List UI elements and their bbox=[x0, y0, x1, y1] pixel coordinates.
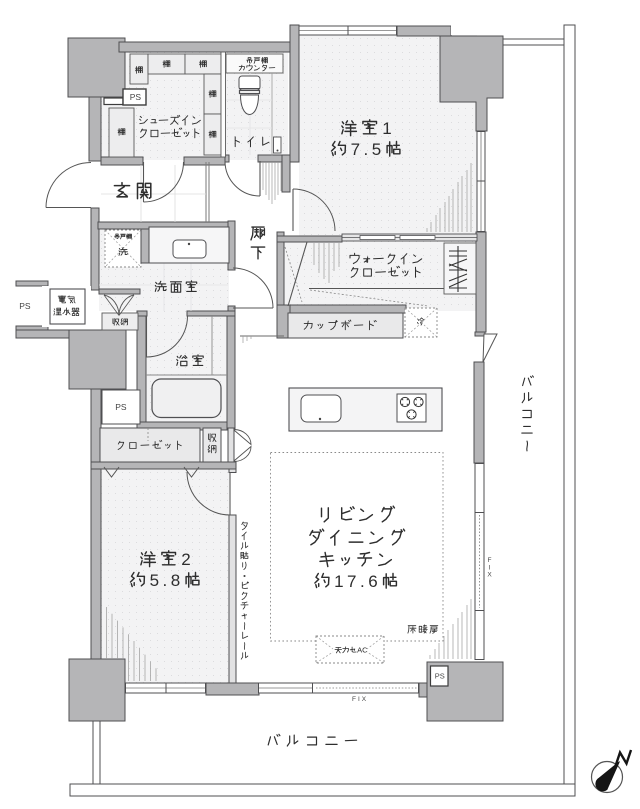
svg-text:2: 2 bbox=[181, 550, 194, 569]
svg-text:17.6: 17.6 bbox=[334, 572, 381, 591]
svg-text:X: X bbox=[487, 571, 492, 578]
svg-text:PS: PS bbox=[115, 402, 127, 412]
svg-text:PS: PS bbox=[19, 301, 31, 311]
svg-text:5.8: 5.8 bbox=[150, 571, 184, 590]
svg-text:PS: PS bbox=[435, 672, 445, 681]
svg-text:AC: AC bbox=[357, 646, 368, 655]
svg-text:F: F bbox=[488, 557, 492, 564]
svg-text:FIX: FIX bbox=[352, 696, 368, 703]
svg-text:7.5: 7.5 bbox=[351, 140, 385, 159]
svg-text:1: 1 bbox=[382, 119, 395, 138]
svg-text:PS: PS bbox=[130, 92, 142, 102]
svg-text:I: I bbox=[489, 564, 491, 571]
